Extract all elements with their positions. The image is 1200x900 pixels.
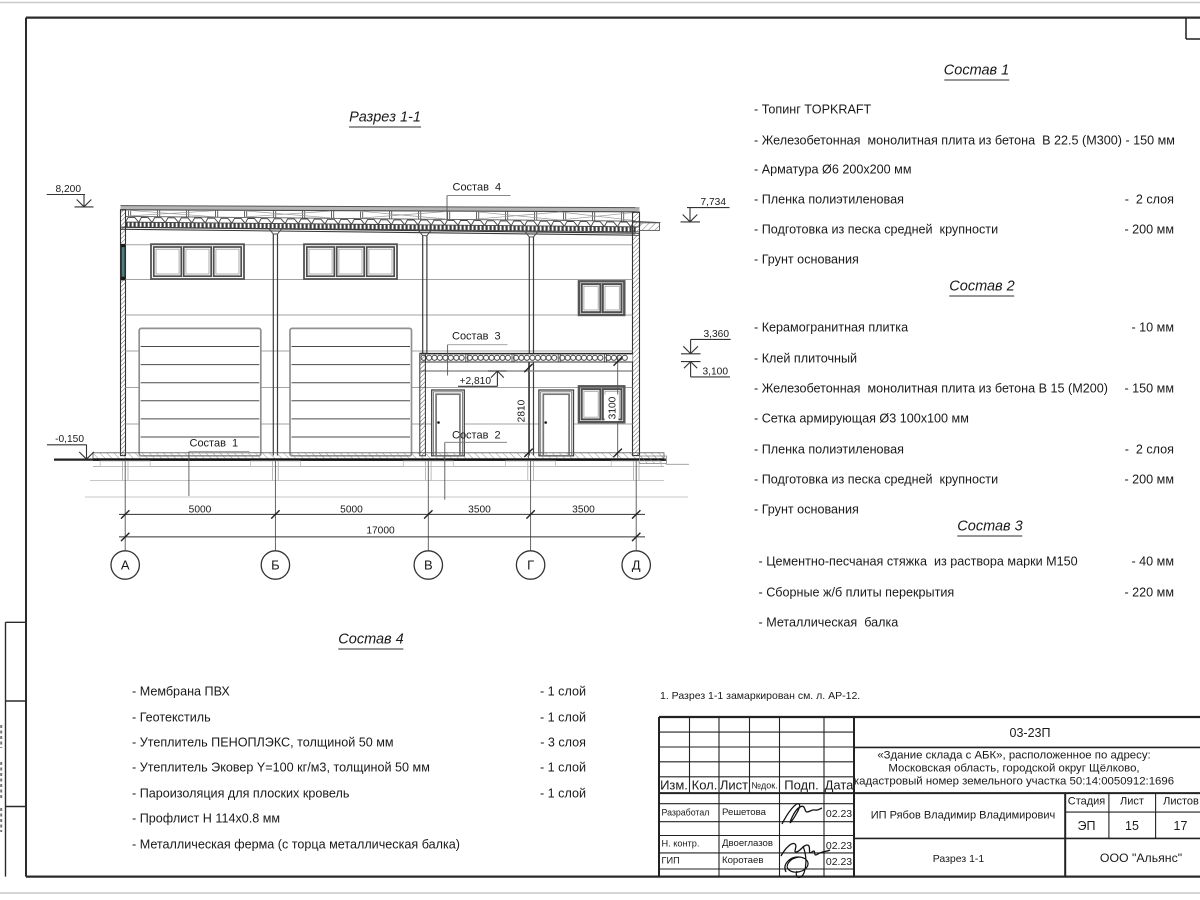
svg-text:7,734: 7,734 xyxy=(701,197,727,208)
svg-text:3500: 3500 xyxy=(468,505,491,516)
svg-text:Г: Г xyxy=(527,558,534,573)
svg-text:В: В xyxy=(424,558,433,573)
svg-text:+2,810: +2,810 xyxy=(460,376,492,387)
svg-text:Д: Д xyxy=(632,558,641,573)
svg-text:Б: Б xyxy=(271,558,280,573)
svg-text:А: А xyxy=(121,558,130,573)
svg-text:-0,150: -0,150 xyxy=(55,434,84,445)
svg-text:3,100: 3,100 xyxy=(703,367,729,378)
svg-text:3100: 3100 xyxy=(608,396,619,419)
svg-text:5000: 5000 xyxy=(340,505,363,516)
svg-text:17000: 17000 xyxy=(366,526,395,537)
svg-text:3,360: 3,360 xyxy=(704,329,730,340)
svg-text:5000: 5000 xyxy=(189,505,212,516)
svg-text:2810: 2810 xyxy=(516,399,527,422)
svg-text:3500: 3500 xyxy=(572,505,595,516)
svg-text:8,200: 8,200 xyxy=(56,184,82,195)
